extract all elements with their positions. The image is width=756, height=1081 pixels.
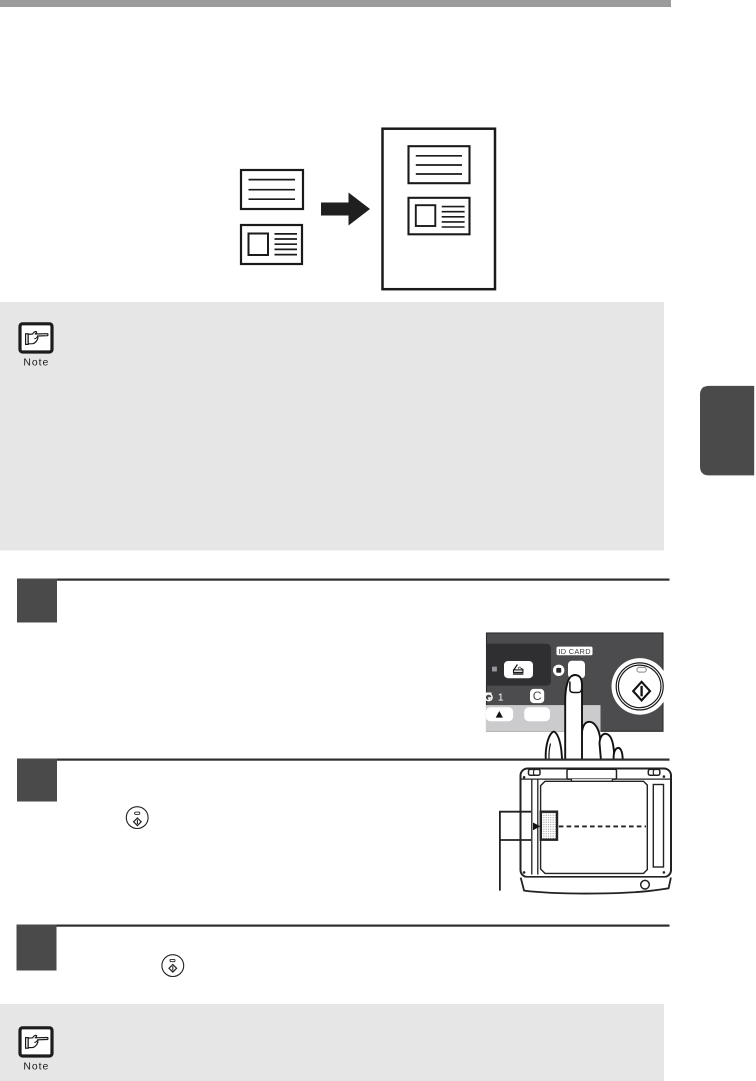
svg-text:Note: Note: [23, 358, 49, 369]
svg-text:1: 1: [498, 692, 504, 703]
svg-text:Note: Note: [23, 1061, 49, 1072]
svg-text:ID CARD: ID CARD: [558, 647, 591, 656]
svg-text:C: C: [533, 689, 542, 703]
